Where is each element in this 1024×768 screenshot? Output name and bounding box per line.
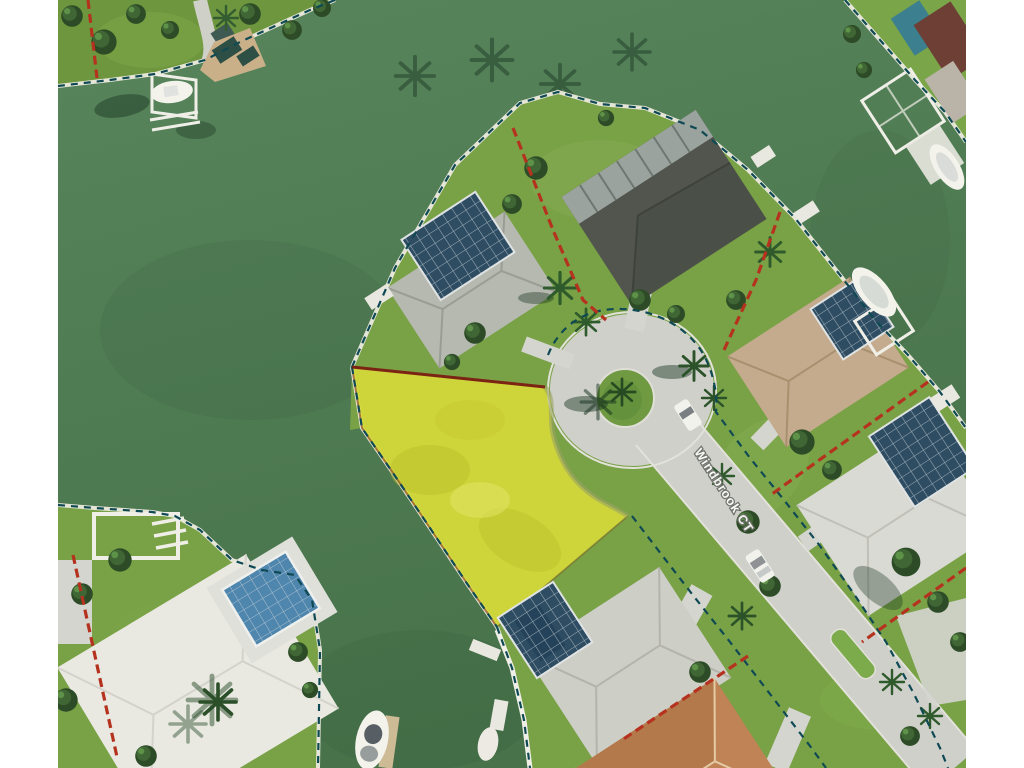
tree bbox=[598, 110, 614, 126]
tree bbox=[667, 305, 685, 323]
palm-tree bbox=[544, 272, 575, 303]
tree bbox=[282, 20, 302, 40]
tree bbox=[892, 548, 921, 577]
palm-tree bbox=[702, 386, 726, 410]
aerial-photo: Windbrook CT bbox=[0, 0, 1024, 768]
palm-tree bbox=[680, 352, 709, 381]
tree bbox=[856, 62, 872, 78]
left-margin bbox=[0, 0, 58, 768]
palm-shadow-icon bbox=[472, 40, 513, 81]
palm-shadow-icon bbox=[396, 57, 434, 95]
palm-shadow-icon bbox=[170, 706, 206, 742]
tree bbox=[135, 745, 157, 767]
tree bbox=[288, 642, 308, 662]
tree bbox=[502, 194, 522, 214]
tree bbox=[464, 322, 486, 344]
tree bbox=[900, 726, 920, 746]
palm-shadow-icon bbox=[614, 34, 650, 70]
tree bbox=[302, 682, 318, 698]
tree bbox=[126, 4, 146, 24]
tree bbox=[822, 460, 842, 480]
tree bbox=[843, 25, 861, 43]
tree bbox=[789, 429, 814, 454]
tree bbox=[444, 354, 460, 370]
palm-shadow-icon bbox=[581, 385, 615, 419]
palm-tree bbox=[200, 684, 236, 720]
tree bbox=[91, 29, 116, 54]
tree bbox=[629, 289, 651, 311]
tree bbox=[161, 21, 179, 39]
palm-tree bbox=[729, 603, 755, 629]
tree bbox=[108, 548, 131, 571]
aerial-photo-canvas: Windbrook CT bbox=[0, 0, 1024, 768]
tree bbox=[61, 5, 83, 27]
palm-tree bbox=[214, 6, 238, 30]
tree bbox=[239, 3, 261, 25]
tree bbox=[689, 661, 711, 683]
right-margin bbox=[966, 0, 1024, 768]
palm-tree bbox=[609, 379, 635, 405]
palm-tree bbox=[880, 670, 904, 694]
